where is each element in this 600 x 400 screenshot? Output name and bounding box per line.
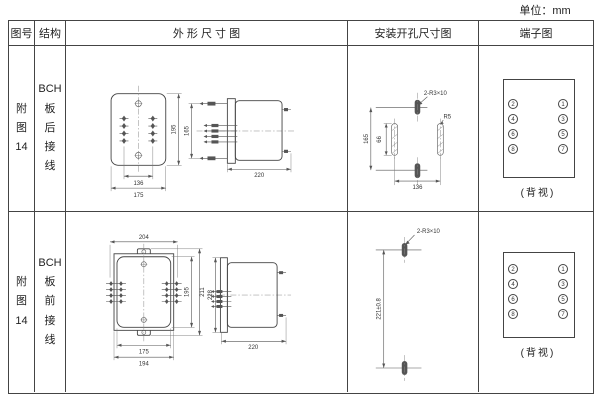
dim-vertical-span: 165 xyxy=(364,108,372,171)
header-mounting: 安装开孔尺寸图 xyxy=(348,21,479,46)
radius-callout: R5 xyxy=(440,115,451,125)
terminal-8: 8 xyxy=(508,144,518,154)
svg-text:136: 136 xyxy=(133,181,144,187)
terminal-7: 7 xyxy=(558,144,568,154)
datasheet-page: 单位：mm 图号 结构 外 形 尺 寸 图 安装开孔尺寸图 端子图 附 图 14… xyxy=(0,0,600,400)
terminal-5: 5 xyxy=(558,129,568,139)
view-caption: (背视) xyxy=(503,184,573,199)
mounting-drawing-front-wiring: 221±0.8 2-R3×10 xyxy=(348,212,478,392)
dim-depth: 220 xyxy=(221,317,286,351)
svg-text:194: 194 xyxy=(139,362,150,368)
front-view: 195 136 175 xyxy=(111,86,182,199)
row2-figure-cell: 附 图 14 xyxy=(9,212,35,392)
svg-text:195: 195 xyxy=(185,286,191,297)
terminal-4: 4 xyxy=(508,114,518,124)
svg-text:136: 136 xyxy=(413,185,424,191)
row2-outline-cell: 204 195 211 xyxy=(66,212,348,392)
svg-text:204: 204 xyxy=(139,235,150,241)
side-slots xyxy=(392,119,444,161)
row1-structure-cell: BCH 板 后 接 线 xyxy=(35,46,66,212)
mounting-drawing-rear-wiring: 165 66 136 2-R3×10 xyxy=(348,46,478,211)
svg-text:195: 195 xyxy=(172,124,178,135)
structure-label: BCH 板 后 接 线 xyxy=(38,80,61,176)
outline-drawing-front-wiring: 204 195 211 xyxy=(66,212,347,392)
svg-text:211: 211 xyxy=(200,287,206,297)
row2-terminal-cell: 2 4 6 8 1 3 5 7 (背视) xyxy=(479,212,593,392)
terminal-4: 4 xyxy=(508,279,518,289)
terminal-6: 6 xyxy=(508,129,518,139)
dim-flange-height: 211 xyxy=(151,249,206,336)
row1-terminal-cell: 2 4 6 8 1 3 5 7 (背视) xyxy=(479,46,593,212)
dim-depth: 220 xyxy=(227,153,291,179)
svg-text:175: 175 xyxy=(139,350,150,356)
dim-slot-length: 66 xyxy=(377,124,391,156)
slot-callout: 2-R3×10 xyxy=(405,229,440,245)
figure-number: 附 图 14 xyxy=(15,273,27,331)
dimension-table: 图号 结构 外 形 尺 寸 图 安装开孔尺寸图 端子图 附 图 14 BCH 板… xyxy=(8,20,594,394)
svg-text:228: 228 xyxy=(208,289,214,300)
header-figure: 图号 xyxy=(9,21,35,46)
front-studs xyxy=(211,271,286,317)
structure-label: BCH 板 前 接 线 xyxy=(38,254,61,350)
svg-text:175: 175 xyxy=(133,193,144,199)
figure-number: 附 图 14 xyxy=(15,100,27,158)
unit-label: 单位：mm xyxy=(500,2,590,18)
row1-figure-cell: 附 图 14 xyxy=(9,46,35,212)
side-view: 228 220 xyxy=(207,258,291,351)
row1-mounting-cell: 165 66 136 2-R3×10 xyxy=(348,46,479,212)
terminal-1: 1 xyxy=(558,264,568,274)
svg-text:165: 165 xyxy=(185,125,191,136)
terminal-2: 2 xyxy=(508,99,518,109)
side-view: 165 220 xyxy=(185,99,296,180)
svg-text:R5: R5 xyxy=(443,115,451,121)
front-view: 204 195 211 xyxy=(106,235,206,368)
header-structure: 结构 xyxy=(35,21,66,46)
dim-side-height: 228 xyxy=(208,258,220,333)
svg-text:221±0.8: 221±0.8 xyxy=(377,298,383,320)
terminal-8: 8 xyxy=(508,309,518,319)
slot-callout: 2-R3×10 xyxy=(418,91,448,105)
svg-text:220: 220 xyxy=(254,173,265,179)
terminal-6: 6 xyxy=(508,294,518,304)
svg-text:220: 220 xyxy=(248,345,259,351)
terminal-2: 2 xyxy=(508,264,518,274)
terminal-7: 7 xyxy=(558,309,568,319)
svg-text:66: 66 xyxy=(377,135,383,142)
row2-mounting-cell: 221±0.8 2-R3×10 xyxy=(348,212,479,392)
svg-text:165: 165 xyxy=(364,133,370,144)
outline-drawing-rear-wiring: 195 136 175 xyxy=(66,46,347,211)
terminal-5: 5 xyxy=(558,294,568,304)
terminal-3: 3 xyxy=(558,279,568,289)
row2-structure-cell: BCH 板 前 接 线 xyxy=(35,212,66,392)
svg-text:2-R3×10: 2-R3×10 xyxy=(417,229,441,235)
terminal-3: 3 xyxy=(558,114,568,124)
row1-outline-cell: 195 136 175 xyxy=(66,46,348,212)
dim-vertical-span: 221±0.8 xyxy=(377,250,385,368)
header-terminal: 端子图 xyxy=(479,21,593,46)
header-outline: 外 形 尺 寸 图 xyxy=(66,21,348,46)
dim-panel-height: 195 xyxy=(172,257,195,328)
svg-text:2-R3×10: 2-R3×10 xyxy=(424,91,448,97)
view-caption: (背视) xyxy=(503,344,573,359)
dim-front-height: 195 xyxy=(167,94,182,166)
terminal-1: 1 xyxy=(558,99,568,109)
